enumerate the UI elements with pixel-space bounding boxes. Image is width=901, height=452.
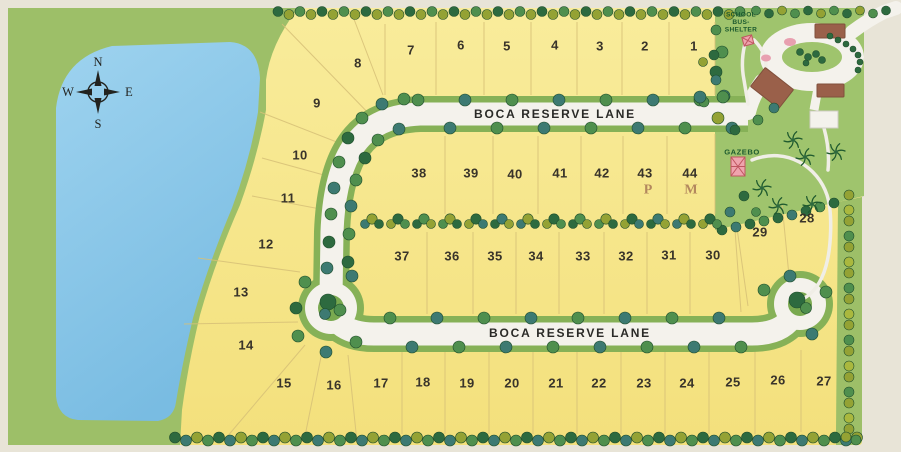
tree-icon (804, 6, 813, 15)
hedge-tree-icon (661, 220, 670, 229)
tree-icon (491, 122, 503, 134)
hedge-tree-icon (427, 220, 436, 229)
tree-icon (350, 174, 362, 186)
tree-icon (356, 112, 368, 124)
tree-icon (830, 432, 841, 443)
lot-number-30: 30 (705, 248, 720, 263)
tree-icon (405, 7, 415, 17)
tree-icon (342, 132, 354, 144)
tree-icon (739, 191, 749, 201)
gazebo-label: GAZEBO (724, 148, 760, 157)
tree-icon (346, 432, 357, 443)
tree-icon (817, 9, 826, 18)
tree-icon (489, 435, 500, 446)
tree-icon (284, 10, 294, 20)
tree-icon (797, 49, 804, 56)
hedge-tree-icon (531, 220, 540, 229)
tree-icon (594, 341, 606, 353)
tree-icon (203, 435, 214, 446)
tree-icon (844, 190, 854, 200)
tree-icon (621, 435, 632, 446)
tree-icon (688, 341, 700, 353)
tree-icon (625, 7, 635, 17)
lot-number-4: 4 (551, 38, 559, 53)
tree-icon (214, 432, 225, 443)
tree-icon (478, 312, 490, 324)
tree-icon (752, 208, 761, 217)
tree-icon (820, 286, 832, 298)
tree-icon (423, 435, 434, 446)
tree-icon (735, 341, 747, 353)
tree-icon (702, 10, 712, 20)
tree-icon (299, 276, 311, 288)
tree-icon (844, 231, 854, 241)
lot-number-16: 16 (326, 378, 341, 393)
tree-icon (302, 432, 313, 443)
tree-icon (258, 432, 269, 443)
hedge-tree-icon (505, 220, 514, 229)
tree-icon (636, 10, 646, 20)
tree-icon (711, 25, 721, 35)
tree-icon (323, 236, 335, 248)
tree-icon (801, 303, 812, 314)
tree-icon (295, 7, 305, 17)
tree-icon (712, 112, 724, 124)
tree-icon (844, 346, 854, 356)
tree-icon (806, 328, 818, 340)
lot-number-33: 33 (575, 249, 590, 264)
lot-number-25: 25 (725, 375, 740, 390)
tree-icon (844, 294, 854, 304)
tree-icon (372, 10, 382, 20)
tree-icon (827, 33, 833, 39)
tree-icon (427, 7, 437, 17)
tree-icon (835, 37, 841, 43)
tree-icon (753, 435, 764, 446)
tree-icon (764, 432, 775, 443)
tree-icon (614, 10, 624, 20)
tree-icon (844, 320, 854, 330)
tree-icon (869, 9, 878, 18)
tree-icon (610, 432, 621, 443)
hedge-tree-icon (401, 220, 410, 229)
tree-icon (526, 10, 536, 20)
tree-icon (350, 336, 362, 348)
tree-icon (269, 435, 280, 446)
tree-icon (290, 302, 302, 314)
tree-icon (555, 435, 566, 446)
tree-icon (359, 152, 371, 164)
tree-icon (416, 10, 426, 20)
hedge-tree-icon (687, 220, 696, 229)
tree-icon (406, 341, 418, 353)
tree-icon (658, 10, 668, 20)
tree-icon (412, 432, 423, 443)
lot-number-1: 1 (690, 39, 698, 54)
tree-icon (709, 50, 719, 60)
tree-icon (765, 9, 774, 18)
lot-number-37: 37 (394, 249, 409, 264)
compass-west-label: W (62, 85, 74, 99)
lot-number-43: 43 (637, 166, 652, 181)
lot-number-7: 7 (407, 43, 415, 58)
tree-icon (459, 94, 471, 106)
tree-icon (844, 205, 854, 215)
tree-icon (333, 156, 345, 168)
lot-number-38: 38 (411, 166, 426, 181)
tree-icon (808, 432, 819, 443)
compass-south-label: S (95, 117, 102, 131)
tree-icon (857, 59, 863, 65)
lot-number-36: 36 (444, 249, 459, 264)
tree-icon (306, 10, 316, 20)
lot-number-29: 29 (752, 225, 767, 240)
tree-icon (585, 122, 597, 134)
tree-icon (401, 435, 412, 446)
tree-icon (317, 7, 327, 17)
lot-number-39: 39 (463, 166, 478, 181)
lot-number-34: 34 (528, 249, 544, 264)
tree-icon (544, 432, 555, 443)
tree-icon (456, 432, 467, 443)
lot-number-41: 41 (552, 166, 567, 181)
tree-icon (471, 7, 481, 17)
tree-icon (641, 341, 653, 353)
street-label-upper: BOCA RESERVE LANE (474, 107, 636, 121)
parking-pad (810, 111, 838, 128)
flower-bed (784, 38, 796, 46)
tree-icon (713, 7, 723, 17)
tree-icon (844, 283, 854, 293)
lot-number-11: 11 (281, 191, 296, 206)
tree-icon (819, 435, 830, 446)
tree-icon (493, 7, 503, 17)
tree-icon (522, 432, 533, 443)
tree-icon (797, 435, 808, 446)
tree-icon (383, 7, 393, 17)
tree-icon (643, 435, 654, 446)
tree-icon (687, 435, 698, 446)
tree-icon (603, 7, 613, 17)
tree-icon (698, 432, 709, 443)
tree-icon (855, 52, 861, 58)
tree-icon (328, 10, 338, 20)
tree-icon (844, 361, 854, 371)
tree-icon (342, 256, 354, 268)
tree-icon (813, 51, 820, 58)
lot-number-35: 35 (487, 249, 502, 264)
entrance-island (782, 42, 842, 72)
building-east (817, 84, 844, 97)
tree-icon (346, 270, 358, 282)
tree-icon (844, 387, 854, 397)
tree-icon (445, 435, 456, 446)
tree-icon (843, 9, 852, 18)
tree-icon (647, 94, 659, 106)
hedge-tree-icon (583, 220, 592, 229)
lot-number-19: 19 (459, 376, 474, 391)
tree-icon (247, 435, 258, 446)
tree-icon (778, 6, 787, 15)
tree-icon (632, 122, 644, 134)
tree-icon (769, 103, 779, 113)
tree-icon (320, 294, 336, 310)
tree-icon (504, 10, 514, 20)
tree-icon (325, 208, 337, 220)
tree-icon (431, 312, 443, 324)
school-bus-shelter-label-line3: SHELTER (725, 27, 757, 34)
tree-icon (600, 94, 612, 106)
tree-icon (379, 435, 390, 446)
tree-icon (572, 312, 584, 324)
tree-icon (844, 413, 854, 423)
tree-icon (328, 182, 340, 194)
lot-number-26: 26 (770, 373, 785, 388)
tree-icon (844, 257, 854, 267)
tree-icon (829, 198, 839, 208)
tree-icon (444, 122, 456, 134)
compass-north-label: N (93, 55, 102, 69)
tree-icon (506, 94, 518, 106)
tree-icon (537, 7, 547, 17)
tree-icon (844, 398, 854, 408)
hedge-tree-icon (375, 220, 384, 229)
tree-icon (775, 435, 786, 446)
tree-icon (478, 432, 489, 443)
lot-number-28: 28 (799, 211, 814, 226)
tree-icon (393, 123, 405, 135)
lot-number-6: 6 (457, 38, 465, 53)
tree-icon (713, 312, 725, 324)
lot-number-44: 44 (682, 166, 698, 181)
tree-icon (725, 207, 735, 217)
lot-number-20: 20 (504, 376, 519, 391)
compass-east-label: E (125, 85, 133, 99)
tree-icon (500, 341, 512, 353)
tree-icon (291, 435, 302, 446)
tree-icon (791, 9, 800, 18)
tree-icon (844, 372, 854, 382)
tree-icon (844, 268, 854, 278)
tree-icon (843, 41, 849, 47)
lot-number-27: 27 (816, 374, 831, 389)
street-label-lower: BOCA RESERVE LANE (489, 326, 651, 340)
lot-number-32: 32 (618, 249, 633, 264)
tree-icon (438, 10, 448, 20)
tree-icon (730, 125, 740, 135)
tree-icon (453, 341, 465, 353)
tree-icon (619, 312, 631, 324)
lot-number-18: 18 (415, 375, 430, 390)
tree-icon (547, 341, 559, 353)
flower-bed (761, 55, 771, 62)
site-plan-map: N S W E BOCA RESERVE LANE BOCA RESERVE L… (0, 0, 901, 452)
tree-icon (350, 10, 360, 20)
tree-icon (717, 91, 729, 103)
tree-icon (460, 10, 470, 20)
tree-icon (321, 262, 333, 274)
tree-icon (280, 432, 291, 443)
tree-icon (830, 6, 839, 15)
hedge-tree-icon (635, 220, 644, 229)
tree-icon (511, 435, 522, 446)
hedge-tree-icon (713, 220, 722, 229)
tree-icon (699, 58, 708, 67)
tree-icon (691, 7, 701, 17)
school-bus-shelter-label-line2: BUS- (732, 19, 749, 26)
lot-number-8: 8 (354, 56, 362, 71)
tree-icon (844, 242, 854, 252)
tree-icon (758, 284, 770, 296)
tree-icon (855, 67, 861, 73)
tree-icon (324, 432, 335, 443)
tree-icon (538, 122, 550, 134)
tree-icon (753, 115, 763, 125)
tree-icon (711, 75, 721, 85)
tree-icon (592, 10, 602, 20)
tree-icon (525, 312, 537, 324)
tree-icon (665, 435, 676, 446)
tree-icon (850, 46, 856, 52)
lot-number-22: 22 (591, 376, 606, 391)
tree-icon (368, 432, 379, 443)
tree-icon (292, 330, 304, 342)
lot-number-12: 12 (258, 237, 273, 252)
tree-icon (784, 270, 796, 282)
lot-number-21: 21 (548, 376, 563, 391)
tree-icon (236, 432, 247, 443)
tree-icon (361, 7, 371, 17)
tree-icon (787, 210, 797, 220)
lot-number-24: 24 (679, 376, 695, 391)
lot-number-17: 17 (373, 376, 388, 391)
tree-icon (566, 432, 577, 443)
lot-number-2: 2 (641, 39, 649, 54)
tree-icon (786, 432, 797, 443)
tree-icon (720, 432, 731, 443)
lot-number-15: 15 (276, 376, 291, 391)
lot-number-5: 5 (503, 39, 511, 54)
tree-icon (345, 200, 357, 212)
tree-icon (841, 432, 851, 442)
lot-number-40: 40 (507, 167, 522, 182)
tree-icon (731, 435, 742, 446)
tree-icon (181, 435, 192, 446)
tree-icon (844, 335, 854, 345)
tree-icon (192, 432, 203, 443)
tree-icon (676, 432, 687, 443)
tree-icon (313, 435, 324, 446)
tree-icon (680, 10, 690, 20)
school-bus-shelter-label-line1: SCHOOL (726, 12, 756, 19)
tree-icon (742, 432, 753, 443)
tree-icon (398, 93, 410, 105)
tree-icon (654, 432, 665, 443)
lot-number-10: 10 (292, 148, 307, 163)
tree-icon (412, 94, 424, 106)
tree-icon (694, 91, 706, 103)
tree-icon (273, 7, 283, 17)
tree-icon (577, 435, 588, 446)
lot44-marker-m: M (684, 183, 697, 198)
tree-icon (647, 7, 657, 17)
tree-icon (679, 122, 691, 134)
hedge-tree-icon (453, 220, 462, 229)
tree-icon (666, 312, 678, 324)
tree-icon (882, 6, 891, 15)
hedge-tree-icon (479, 220, 488, 229)
tree-icon (225, 435, 236, 446)
tree-icon (394, 10, 404, 20)
tree-icon (390, 432, 401, 443)
tree-icon (343, 228, 355, 240)
tree-icon (844, 216, 854, 226)
hedge-tree-icon (609, 220, 618, 229)
tree-icon (851, 435, 861, 445)
tree-icon (339, 7, 349, 17)
tree-icon (669, 7, 679, 17)
tree-icon (170, 432, 181, 443)
tree-icon (376, 98, 388, 110)
tree-icon (449, 7, 459, 17)
tree-icon (320, 309, 331, 320)
tree-icon (559, 7, 569, 17)
lot-number-3: 3 (596, 39, 604, 54)
tree-icon (335, 435, 346, 446)
tree-icon (320, 346, 332, 358)
tree-icon (482, 10, 492, 20)
tree-icon (372, 134, 384, 146)
gazebo-icon (731, 157, 745, 176)
tree-icon (515, 7, 525, 17)
site-plan-svg: N S W E BOCA RESERVE LANE BOCA RESERVE L… (0, 0, 901, 452)
tree-icon (570, 10, 580, 20)
tree-icon (357, 435, 368, 446)
tree-icon (467, 435, 478, 446)
tree-icon (803, 60, 809, 66)
school-bus-shelter-icon (742, 35, 754, 46)
tree-icon (334, 304, 346, 316)
tree-icon (819, 57, 826, 64)
tree-icon (581, 7, 591, 17)
lot-number-13: 13 (233, 285, 248, 300)
lot-number-31: 31 (661, 248, 676, 263)
lot43-marker-p: P (644, 183, 653, 198)
tree-icon (553, 94, 565, 106)
tree-icon (599, 435, 610, 446)
tree-icon (632, 432, 643, 443)
tree-icon (805, 54, 812, 61)
tree-icon (731, 222, 741, 232)
lot-number-9: 9 (313, 96, 321, 111)
lot-number-23: 23 (636, 376, 651, 391)
tree-icon (856, 6, 865, 15)
tree-icon (844, 309, 854, 319)
tree-icon (588, 432, 599, 443)
lot-number-14: 14 (238, 338, 254, 353)
tree-icon (384, 312, 396, 324)
tree-icon (500, 432, 511, 443)
tree-icon (709, 435, 720, 446)
hedge-tree-icon (557, 220, 566, 229)
lot-number-42: 42 (594, 166, 609, 181)
tree-icon (434, 432, 445, 443)
tree-icon (533, 435, 544, 446)
tree-icon (548, 10, 558, 20)
